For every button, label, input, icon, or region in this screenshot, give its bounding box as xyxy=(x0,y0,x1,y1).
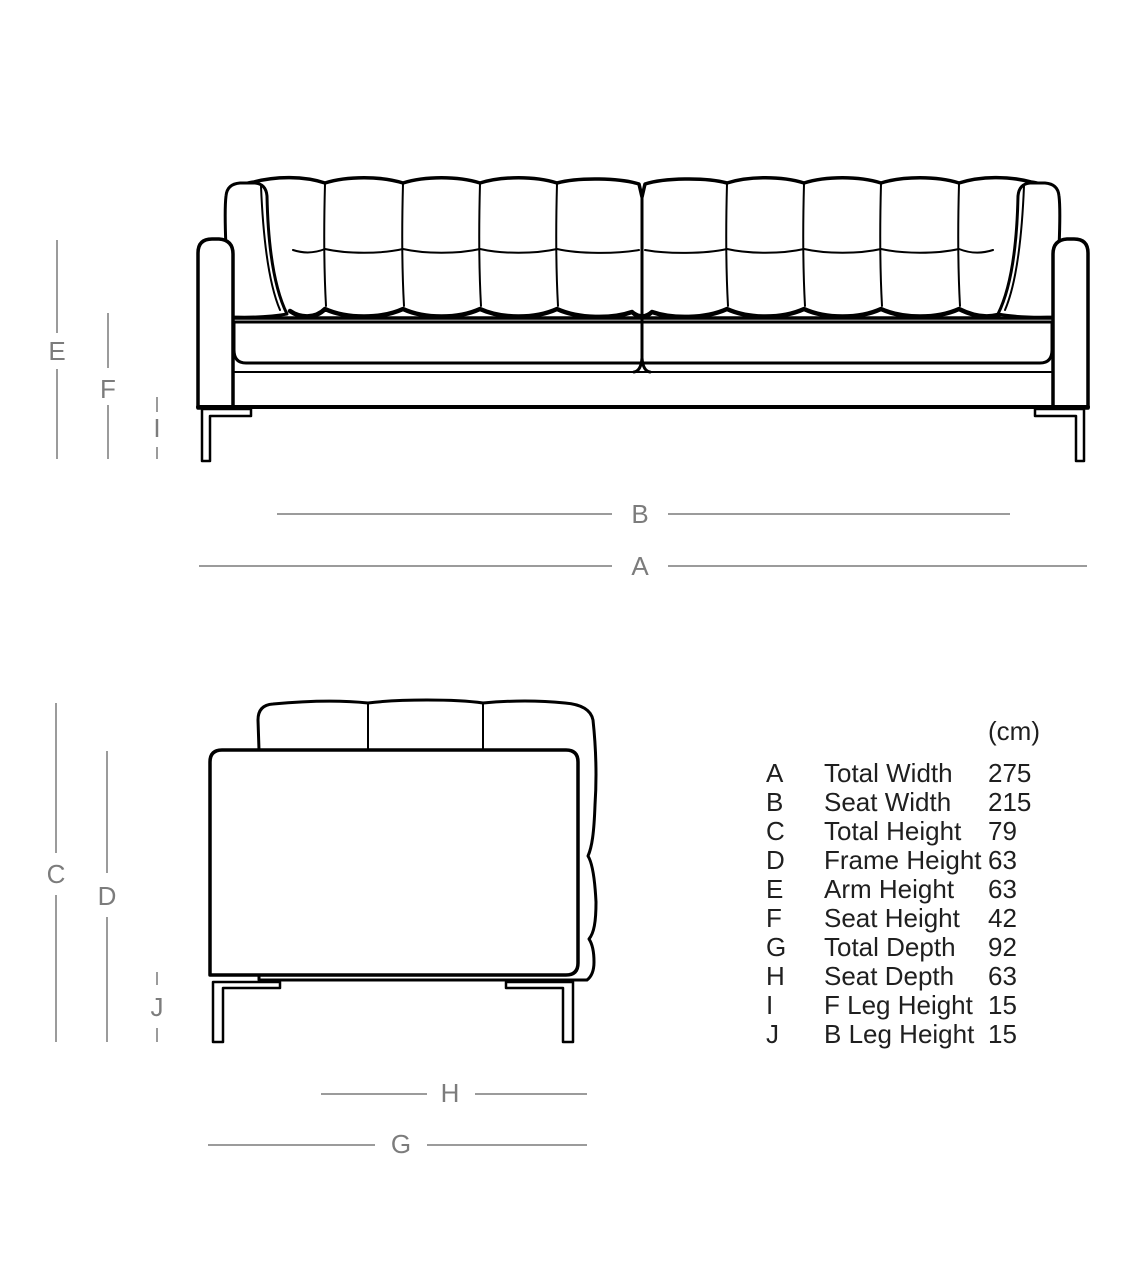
dimension-label-i: I xyxy=(153,415,160,441)
side-arm-panel xyxy=(210,750,578,975)
dimension-label-c: C xyxy=(47,861,66,887)
row-value: 275 xyxy=(988,759,1076,788)
row-key: D xyxy=(766,846,824,875)
front-left-arm xyxy=(198,239,233,408)
row-name: B Leg Height xyxy=(824,1020,988,1049)
table-row: E Arm Height 63 xyxy=(766,875,1076,904)
row-value: 42 xyxy=(988,904,1076,933)
row-value: 92 xyxy=(988,933,1076,962)
table-row: A Total Width 275 xyxy=(766,759,1076,788)
front-view-sofa-drawing xyxy=(198,178,1088,461)
row-value: 63 xyxy=(988,846,1076,875)
row-name: Seat Depth xyxy=(824,962,988,991)
side-front-leg xyxy=(506,982,573,1042)
row-key: H xyxy=(766,962,824,991)
table-row: J B Leg Height 15 xyxy=(766,1020,1076,1049)
table-row: F Seat Height 42 xyxy=(766,904,1076,933)
dimension-label-b: B xyxy=(631,501,648,527)
dimension-label-f: F xyxy=(100,376,116,402)
row-value: 63 xyxy=(988,962,1076,991)
row-key: G xyxy=(766,933,824,962)
row-name: F Leg Height xyxy=(824,991,988,1020)
row-name: Total Height xyxy=(824,817,988,846)
dimension-label-e: E xyxy=(48,338,65,364)
row-value: 15 xyxy=(988,1020,1076,1049)
row-key: A xyxy=(766,759,824,788)
row-value: 79 xyxy=(988,817,1076,846)
row-name: Seat Width xyxy=(824,788,988,817)
dimension-label-h: H xyxy=(441,1080,460,1106)
sofa-dimension-diagram: E F I B A C D J H G (cm) A Total Width 2… xyxy=(0,0,1146,1282)
row-key: C xyxy=(766,817,824,846)
diagram-line-art xyxy=(0,0,1146,1282)
row-value: 63 xyxy=(988,875,1076,904)
side-view-sofa-drawing xyxy=(210,700,596,1042)
row-name: Frame Height xyxy=(824,846,988,875)
row-value: 15 xyxy=(988,991,1076,1020)
dimension-label-d: D xyxy=(98,883,117,909)
row-key: I xyxy=(766,991,824,1020)
measurements-table: (cm) A Total Width 275 B Seat Width 215 … xyxy=(766,716,1076,1049)
row-key: F xyxy=(766,904,824,933)
side-back-leg xyxy=(213,982,280,1042)
front-right-arm xyxy=(1053,239,1088,408)
table-row: C Total Height 79 xyxy=(766,817,1076,846)
table-row: D Frame Height 63 xyxy=(766,846,1076,875)
table-row: H Seat Depth 63 xyxy=(766,962,1076,991)
row-name: Arm Height xyxy=(824,875,988,904)
table-row: B Seat Width 215 xyxy=(766,788,1076,817)
dimension-label-g: G xyxy=(391,1131,411,1157)
table-row: G Total Depth 92 xyxy=(766,933,1076,962)
dimension-label-a: A xyxy=(631,553,648,579)
table-unit-header: (cm) xyxy=(988,716,1076,746)
row-name: Total Depth xyxy=(824,933,988,962)
row-key: E xyxy=(766,875,824,904)
front-left-leg xyxy=(202,409,251,461)
dimension-label-j: J xyxy=(151,994,164,1020)
table-row: I F Leg Height 15 xyxy=(766,991,1076,1020)
row-key: J xyxy=(766,1020,824,1049)
row-key: B xyxy=(766,788,824,817)
row-name: Total Width xyxy=(824,759,988,788)
row-name: Seat Height xyxy=(824,904,988,933)
front-right-leg xyxy=(1035,409,1084,461)
row-value: 215 xyxy=(988,788,1076,817)
